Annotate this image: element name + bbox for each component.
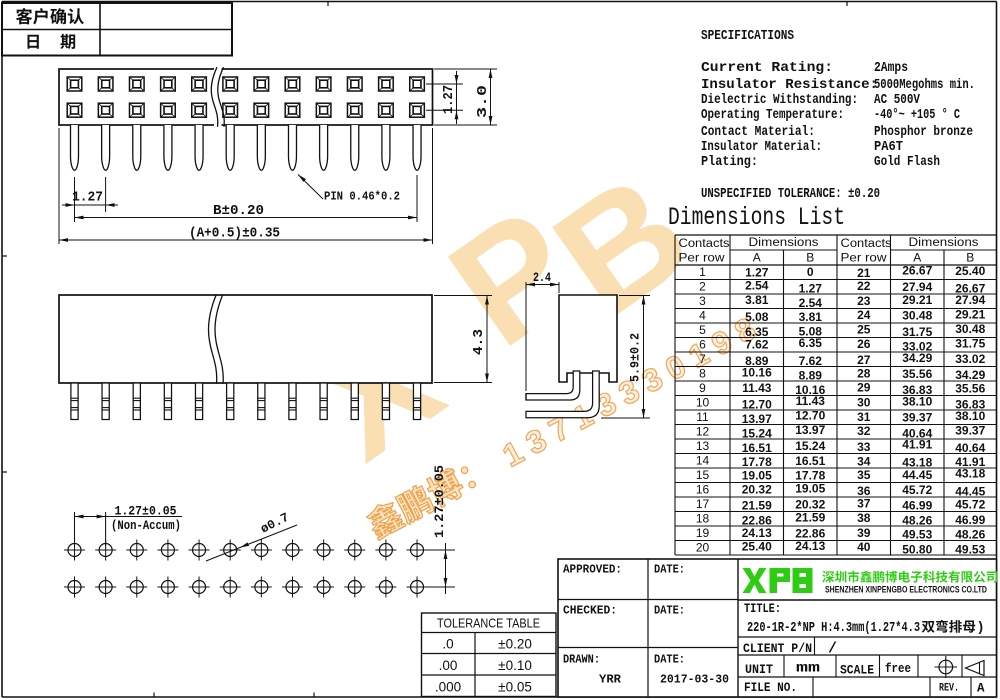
svg-text:14: 14 bbox=[696, 453, 710, 467]
svg-text:31.75: 31.75 bbox=[955, 337, 985, 351]
svg-text:B: B bbox=[966, 251, 974, 265]
svg-text:15.24: 15.24 bbox=[742, 426, 772, 440]
svg-text:32: 32 bbox=[857, 424, 871, 438]
svg-text:Contacts: Contacts bbox=[841, 238, 892, 250]
svg-text:33.02: 33.02 bbox=[955, 352, 985, 366]
svg-text:UNIT: UNIT bbox=[745, 662, 773, 677]
svg-text:27.94: 27.94 bbox=[955, 293, 985, 307]
svg-text:23: 23 bbox=[857, 294, 871, 308]
svg-text:20.32: 20.32 bbox=[742, 482, 772, 496]
svg-text:Operating Temperature:: Operating Temperature: bbox=[701, 108, 844, 123]
svg-text:39: 39 bbox=[857, 526, 871, 540]
svg-text:.000: .000 bbox=[435, 680, 461, 695]
svg-text:mm: mm bbox=[796, 661, 820, 677]
svg-text:20.32: 20.32 bbox=[795, 498, 825, 512]
svg-text:38.10: 38.10 bbox=[902, 395, 932, 409]
svg-text:27: 27 bbox=[857, 353, 871, 367]
svg-text:4: 4 bbox=[699, 308, 706, 322]
svg-text:15.24: 15.24 bbox=[795, 439, 825, 453]
svg-text:(Non-Accum): (Non-Accum) bbox=[111, 519, 181, 533]
svg-text:25.40: 25.40 bbox=[742, 540, 772, 554]
svg-text:22: 22 bbox=[857, 279, 871, 293]
svg-text:13.97: 13.97 bbox=[742, 412, 772, 426]
svg-text:16: 16 bbox=[696, 482, 710, 496]
svg-text:Current Rating:: Current Rating: bbox=[701, 61, 833, 76]
svg-text:12: 12 bbox=[696, 424, 710, 438]
svg-text:7.62: 7.62 bbox=[799, 354, 823, 368]
svg-text:1.27: 1.27 bbox=[442, 85, 457, 114]
svg-text:TITLE:: TITLE: bbox=[744, 601, 781, 616]
svg-text:35.56: 35.56 bbox=[955, 382, 985, 396]
svg-text:Dimensions: Dimensions bbox=[909, 237, 979, 249]
svg-text:12.70: 12.70 bbox=[795, 409, 825, 423]
svg-text:-40°~ +105 ° C: -40°~ +105 ° C bbox=[874, 108, 960, 123]
svg-text:31: 31 bbox=[857, 410, 871, 424]
svg-text:2.4: 2.4 bbox=[533, 270, 551, 285]
svg-text:A: A bbox=[753, 251, 761, 265]
svg-text:SPECIFICATIONS: SPECIFICATIONS bbox=[701, 28, 794, 44]
svg-text:DRAWN:: DRAWN: bbox=[563, 654, 600, 667]
svg-text:2.54: 2.54 bbox=[745, 279, 769, 293]
svg-text:11: 11 bbox=[696, 410, 709, 424]
svg-text:26: 26 bbox=[857, 337, 871, 351]
svg-text:29: 29 bbox=[857, 381, 871, 395]
svg-text:YRR: YRR bbox=[599, 674, 621, 687]
svg-text:B±0.20: B±0.20 bbox=[213, 204, 264, 219]
svg-text:5000Megohms min.: 5000Megohms min. bbox=[874, 78, 975, 93]
svg-text:PIN 0.46*0.2: PIN 0.46*0.2 bbox=[324, 191, 400, 204]
svg-text:8: 8 bbox=[699, 366, 706, 380]
svg-text:7.62: 7.62 bbox=[745, 337, 769, 351]
svg-text:/: / bbox=[828, 641, 837, 658]
svg-text:SHENZHEN XINPENGBO ELECTRONICS: SHENZHEN XINPENGBO ELECTRONICS CO.LTD bbox=[825, 585, 987, 595]
svg-text:7: 7 bbox=[699, 352, 706, 366]
svg-text:5.9±0.2: 5.9±0.2 bbox=[628, 333, 643, 382]
svg-text:5.08: 5.08 bbox=[745, 310, 769, 324]
svg-text:34: 34 bbox=[857, 455, 871, 469]
svg-text:34.29: 34.29 bbox=[955, 368, 985, 382]
svg-text:CLIENT P/N: CLIENT P/N bbox=[743, 641, 812, 656]
svg-text:16.51: 16.51 bbox=[742, 441, 772, 455]
svg-text:34.29: 34.29 bbox=[902, 351, 932, 365]
svg-text:TOLERANCE TABLE: TOLERANCE TABLE bbox=[437, 616, 540, 631]
svg-text:19: 19 bbox=[696, 526, 710, 540]
svg-text:21: 21 bbox=[857, 266, 871, 280]
svg-text:30.48: 30.48 bbox=[955, 322, 985, 336]
svg-text:.0: .0 bbox=[442, 637, 453, 652]
svg-text:13.97: 13.97 bbox=[795, 423, 825, 437]
svg-text:3.81: 3.81 bbox=[745, 293, 769, 307]
svg-text:21.59: 21.59 bbox=[795, 511, 825, 525]
svg-text:PA6T: PA6T bbox=[874, 140, 903, 155]
svg-text:DATE:: DATE: bbox=[654, 605, 685, 618]
svg-text:37: 37 bbox=[857, 496, 871, 510]
svg-text:Insulator Material:: Insulator Material: bbox=[701, 140, 822, 155]
svg-text:30: 30 bbox=[857, 396, 871, 410]
svg-text:39.37: 39.37 bbox=[902, 411, 932, 425]
svg-text:48.26: 48.26 bbox=[955, 528, 985, 542]
svg-text:Insulator Resistance:: Insulator Resistance: bbox=[701, 78, 878, 93]
svg-text:10.16: 10.16 bbox=[742, 366, 772, 380]
svg-text:A: A bbox=[913, 251, 921, 265]
svg-text:8.89: 8.89 bbox=[799, 368, 823, 382]
svg-text:free: free bbox=[885, 661, 911, 676]
svg-text:SCALE: SCALE bbox=[840, 663, 874, 678]
svg-text:40: 40 bbox=[857, 540, 871, 554]
svg-text:2.54: 2.54 bbox=[799, 296, 823, 310]
svg-text:20: 20 bbox=[696, 540, 710, 554]
svg-text:Dimensions List: Dimensions List bbox=[668, 203, 845, 232]
svg-text:Dimensions: Dimensions bbox=[749, 237, 819, 249]
svg-text:FILE NO.: FILE NO. bbox=[744, 680, 797, 695]
svg-text:UNSPECIFIED TOLERANCE: ±0.20: UNSPECIFIED TOLERANCE: ±0.20 bbox=[701, 187, 880, 202]
svg-text:16.51: 16.51 bbox=[795, 454, 825, 468]
svg-text:18: 18 bbox=[696, 511, 710, 525]
svg-text:26.67: 26.67 bbox=[902, 264, 932, 278]
svg-text:Per row: Per row bbox=[679, 253, 726, 265]
svg-text:45.72: 45.72 bbox=[955, 498, 985, 512]
svg-text:19.05: 19.05 bbox=[742, 469, 772, 483]
svg-text:25.40: 25.40 bbox=[955, 264, 985, 278]
svg-text:17: 17 bbox=[696, 497, 710, 511]
svg-text:41.91: 41.91 bbox=[902, 438, 932, 452]
svg-text:2Amps: 2Amps bbox=[874, 61, 908, 76]
svg-text:1.27: 1.27 bbox=[72, 191, 103, 206]
svg-text:50.80: 50.80 bbox=[902, 542, 932, 556]
svg-text:30.48: 30.48 bbox=[902, 308, 932, 322]
svg-text:1.27±0.05: 1.27±0.05 bbox=[433, 465, 447, 538]
svg-text:17.78: 17.78 bbox=[795, 469, 825, 483]
svg-text:17.78: 17.78 bbox=[742, 455, 772, 469]
svg-text:DATE:: DATE: bbox=[654, 654, 685, 667]
svg-text:38: 38 bbox=[857, 511, 871, 525]
svg-text:33: 33 bbox=[857, 440, 871, 454]
svg-text:(A+0.5)±0.35: (A+0.5)±0.35 bbox=[189, 227, 280, 242]
svg-text:1.27±0.05: 1.27±0.05 bbox=[115, 505, 177, 519]
svg-text:35: 35 bbox=[857, 468, 871, 482]
svg-text:46.99: 46.99 bbox=[902, 499, 932, 513]
svg-text:44.45: 44.45 bbox=[902, 468, 932, 482]
svg-text:Contacts: Contacts bbox=[679, 238, 730, 250]
svg-text:A: A bbox=[977, 682, 985, 696]
svg-text:CHECKED:: CHECKED: bbox=[563, 605, 617, 618]
svg-text:11.43: 11.43 bbox=[742, 381, 772, 395]
svg-text:49.53: 49.53 bbox=[902, 528, 932, 542]
svg-text:±0.20: ±0.20 bbox=[498, 637, 532, 652]
svg-text:29.21: 29.21 bbox=[902, 293, 932, 307]
svg-text:4.3: 4.3 bbox=[472, 329, 487, 355]
svg-text:2017-03-30: 2017-03-30 bbox=[660, 673, 729, 687]
svg-text:6: 6 bbox=[699, 337, 706, 351]
svg-text:46.99: 46.99 bbox=[955, 513, 985, 527]
svg-text:9: 9 bbox=[699, 381, 706, 395]
svg-text:24.13: 24.13 bbox=[742, 526, 772, 540]
svg-text:24: 24 bbox=[857, 308, 871, 322]
svg-text:35.56: 35.56 bbox=[902, 367, 932, 381]
svg-text:21.59: 21.59 bbox=[742, 499, 772, 513]
svg-text:±0.05: ±0.05 bbox=[498, 680, 532, 695]
svg-text:13: 13 bbox=[696, 439, 710, 453]
svg-text:1.27: 1.27 bbox=[745, 266, 769, 280]
svg-text:APPROVED:: APPROVED: bbox=[563, 564, 622, 577]
svg-text:28: 28 bbox=[857, 367, 871, 381]
svg-text:0: 0 bbox=[807, 265, 814, 279]
svg-text:B: B bbox=[806, 251, 814, 265]
svg-text:10: 10 bbox=[696, 395, 710, 409]
svg-text:3: 3 bbox=[699, 294, 706, 308]
svg-text:1: 1 bbox=[699, 265, 706, 279]
svg-text:43.18: 43.18 bbox=[955, 467, 985, 481]
svg-text:AC 500V: AC 500V bbox=[874, 93, 921, 108]
svg-text:Per row: Per row bbox=[841, 253, 888, 265]
svg-text:12.70: 12.70 bbox=[742, 397, 772, 411]
svg-text:25: 25 bbox=[857, 323, 871, 337]
svg-text:.00: .00 bbox=[439, 658, 458, 673]
svg-text:6.35: 6.35 bbox=[799, 336, 823, 350]
svg-text:24.13: 24.13 bbox=[795, 539, 825, 553]
svg-text:44.45: 44.45 bbox=[955, 484, 985, 498]
svg-text:19.05: 19.05 bbox=[795, 482, 825, 496]
svg-text:1.27: 1.27 bbox=[799, 281, 823, 295]
svg-text:29.21: 29.21 bbox=[955, 308, 985, 322]
svg-text:Plating:: Plating: bbox=[701, 155, 758, 170]
svg-text:27.94: 27.94 bbox=[902, 280, 932, 294]
svg-text:3.0: 3.0 bbox=[476, 85, 491, 118]
svg-text:DATE:: DATE: bbox=[654, 564, 685, 577]
svg-text:49.53: 49.53 bbox=[955, 542, 985, 556]
svg-text:Gold Flash: Gold Flash bbox=[874, 155, 940, 170]
svg-text:40.64: 40.64 bbox=[955, 441, 985, 455]
svg-text:5: 5 bbox=[699, 323, 706, 337]
svg-text:220-1R-2*NP H:4.3mm(1.27*4.3: 220-1R-2*NP H:4.3mm(1.27*4.3 bbox=[747, 621, 920, 636]
svg-text:31.75: 31.75 bbox=[902, 325, 932, 339]
svg-text:): ) bbox=[977, 621, 985, 636]
svg-text:45.72: 45.72 bbox=[902, 483, 932, 497]
svg-text:Phosphor bronze: Phosphor bronze bbox=[874, 125, 973, 140]
svg-text:38.10: 38.10 bbox=[955, 409, 985, 423]
svg-text:48.26: 48.26 bbox=[902, 513, 932, 527]
svg-text:REV.: REV. bbox=[939, 683, 959, 695]
svg-text:2: 2 bbox=[699, 279, 706, 293]
svg-text:11.43: 11.43 bbox=[796, 394, 826, 408]
svg-text:Dielectric Withstanding:: Dielectric Withstanding: bbox=[701, 93, 858, 108]
svg-text:3.81: 3.81 bbox=[799, 310, 823, 324]
svg-text:Contact Material:: Contact Material: bbox=[701, 125, 815, 140]
svg-text:±0.10: ±0.10 bbox=[498, 658, 532, 673]
svg-text:39.37: 39.37 bbox=[955, 424, 985, 438]
svg-text:15: 15 bbox=[696, 468, 710, 482]
